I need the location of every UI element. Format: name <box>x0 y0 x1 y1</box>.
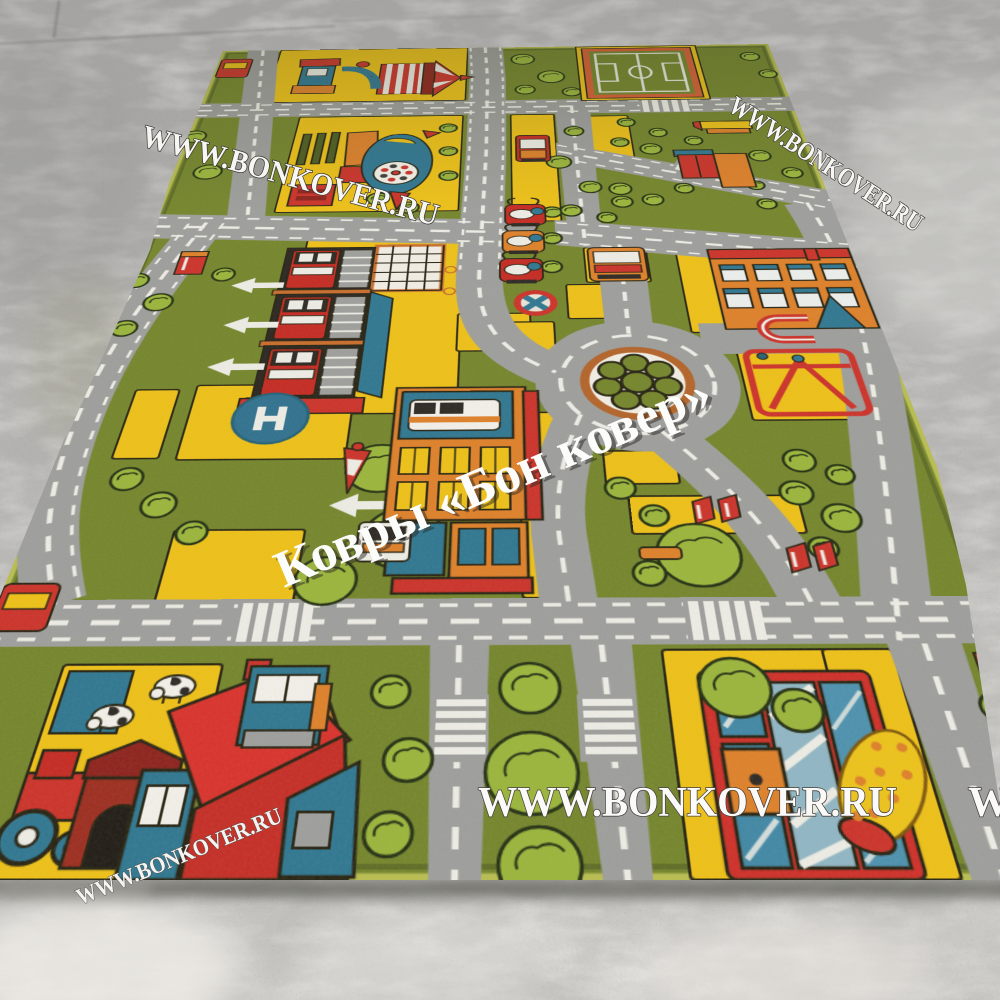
svg-text:WWW.BONKOVER.RU: WWW.BONKOVER.RU <box>724 91 929 238</box>
svg-text:WWW.BONKOVER.RU: WWW.BONKOVER.RU <box>478 780 897 826</box>
svg-text:WWW.BONKOVER.RU: WWW.BONKOVER.RU <box>138 118 442 233</box>
svg-text:WWW.BONKOVER.RU: WWW.BONKOVER.RU <box>72 803 285 910</box>
svg-text:Ковры «Бон ковер»: Ковры «Бон ковер» <box>266 364 719 599</box>
svg-text:W: W <box>968 780 1000 826</box>
